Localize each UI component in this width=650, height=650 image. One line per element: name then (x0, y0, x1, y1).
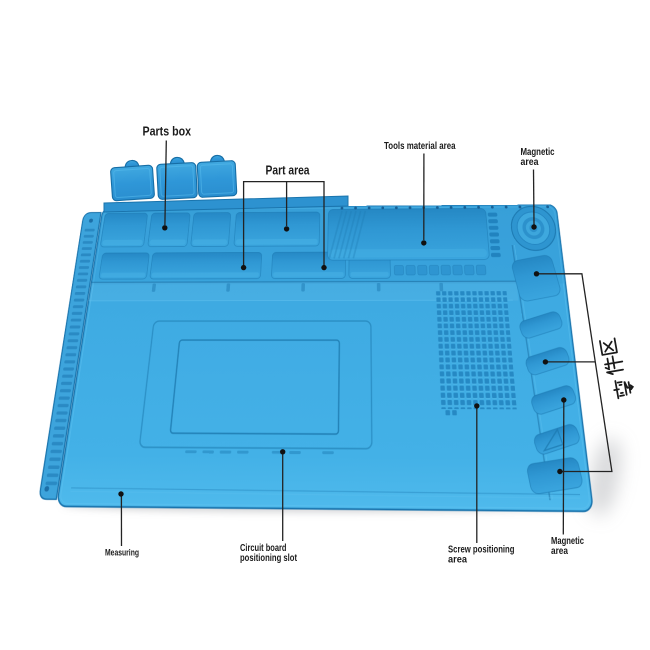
svg-text:area: area (551, 545, 568, 557)
svg-text:Measuring: Measuring (105, 548, 139, 559)
svg-text:area: area (521, 156, 539, 168)
svg-text:Parts box: Parts box (143, 124, 192, 139)
svg-text:Part area: Part area (266, 163, 311, 178)
svg-text:area: area (448, 554, 467, 566)
svg-text:positioning slot: positioning slot (240, 552, 297, 564)
svg-text:Tools material area: Tools material area (384, 140, 456, 152)
